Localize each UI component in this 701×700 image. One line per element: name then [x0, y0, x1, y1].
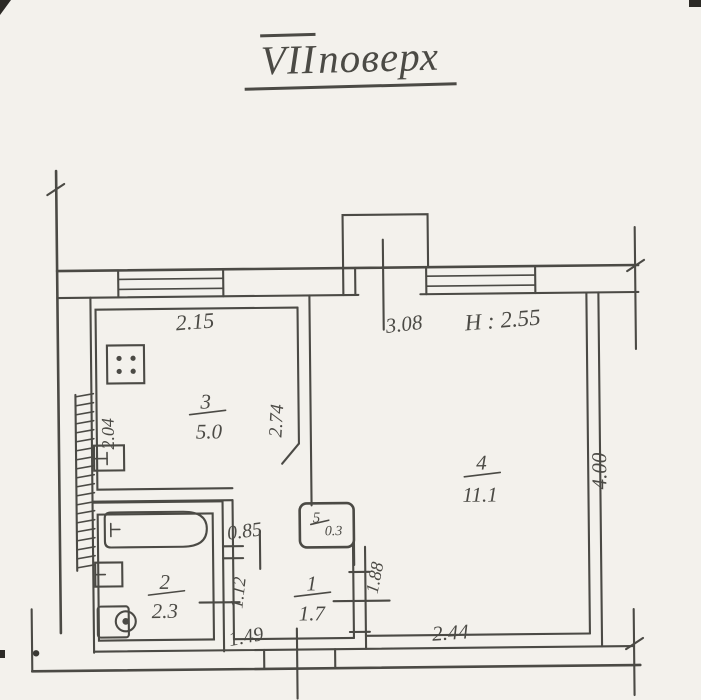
scan-artifact-left-edge — [0, 650, 5, 658]
room-label-bathroom: 2 2.3 — [148, 570, 185, 623]
dim-kitchen-living-wall: 2.74 — [265, 403, 288, 438]
scan-artifact-top-left — [0, 0, 11, 15]
room-kitchen-area: 5.0 — [196, 419, 223, 443]
dim-hall-bath-wall: 1.12 — [226, 576, 249, 610]
living-bottom-wall-inner — [366, 633, 590, 635]
ceiling-height-label: H : 2.55 — [463, 304, 542, 335]
room-label-closet: 5 0.3 — [311, 510, 343, 539]
room-bathroom — [93, 501, 225, 652]
kitchen-door-swing — [282, 444, 299, 464]
dimension-dash-hall-living — [334, 601, 390, 602]
dim-living-depth: 4.00 — [587, 452, 611, 489]
room-kitchen-outline — [96, 308, 300, 490]
outer-wall-top-inner-left — [57, 295, 358, 298]
dim-kitchen-left-depth: 2.04 — [98, 418, 118, 450]
extension-line-right-upper — [635, 227, 636, 349]
room-hallway — [199, 499, 391, 651]
kitchen-living-wall-outer — [309, 295, 311, 505]
balcony-outline — [343, 214, 429, 268]
room-label-living: 4 11.1 — [462, 450, 501, 506]
scanned-floor-plan-page: { "page": { "title_roman": "VII", "title… — [0, 0, 701, 700]
hall-right-wall-inner — [353, 545, 354, 638]
room-label-hallway: 1 1.7 — [294, 571, 331, 625]
extension-line-right-lower — [634, 609, 635, 695]
outer-wall-left — [56, 171, 61, 633]
bottom-wall-inner — [94, 646, 634, 652]
toilet-icon — [98, 606, 136, 637]
outer-wall-top-outer — [57, 265, 638, 271]
scan-artifact-top-right — [689, 0, 701, 7]
kitchen-window — [118, 269, 223, 297]
dim-living-window-offset: 3.08 — [383, 310, 424, 338]
room-hallway-number: 1 — [306, 571, 317, 595]
outer-wall-top-inner-right — [420, 292, 638, 294]
dim-kitchen-top-width: 2.15 — [175, 307, 215, 335]
stove-icon — [107, 345, 144, 383]
outer-walls — [27, 165, 649, 700]
dim-hall-bottom-width: 1.49 — [227, 623, 265, 651]
living-window — [426, 266, 535, 294]
dim-living-bottom-width: 2.44 — [431, 619, 470, 645]
bathtub-icon — [105, 512, 207, 548]
bottom-left-corner-line — [32, 609, 33, 671]
floor-plan-drawing: 2.15 3.08 H : 2.55 2.04 2.74 4.00 2.44 1… — [0, 0, 701, 700]
bathroom-right-wall-outer — [223, 501, 225, 651]
bottom-left-corner-dot — [33, 650, 39, 656]
room-hallway-area: 1.7 — [299, 601, 327, 625]
room-kitchen-number: 3 — [199, 389, 211, 413]
dim-kitchen-passage-width: 0.85 — [226, 518, 264, 544]
room-label-kitchen: 3 5.0 — [189, 389, 226, 443]
hall-right-wall-outer — [365, 547, 366, 649]
kitchen-living-wall-inner — [298, 308, 299, 444]
bathroom-top-wall-outer — [93, 501, 223, 502]
room-living-number: 4 — [476, 451, 487, 475]
room-bathroom-area: 2.3 — [152, 599, 178, 623]
room-living-area: 11.1 — [462, 482, 497, 506]
room-closet-area: 0.3 — [325, 524, 343, 539]
room-bathroom-number: 2 — [159, 570, 170, 594]
